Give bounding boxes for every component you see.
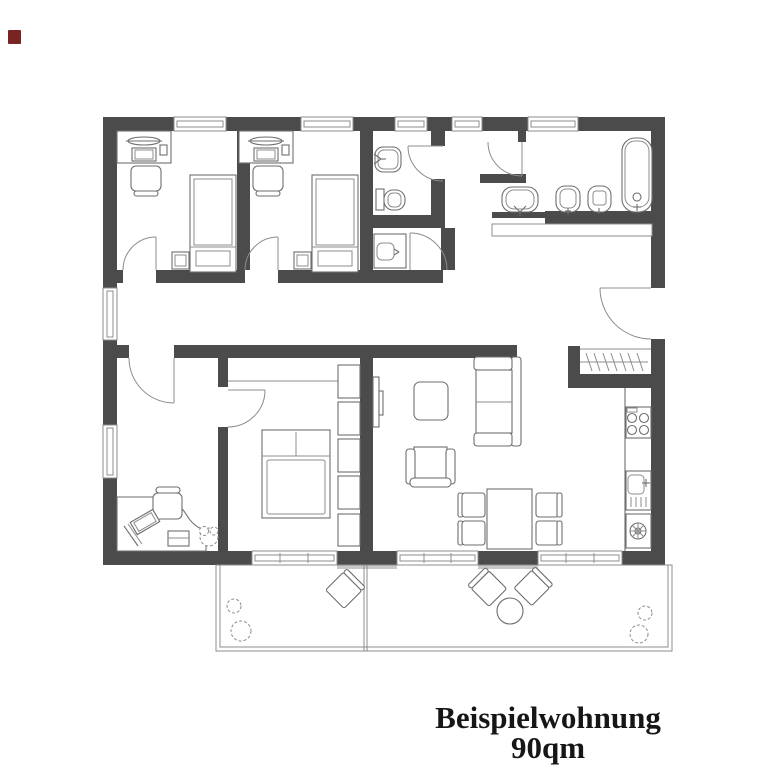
kitchen-stove — [626, 407, 651, 438]
window — [395, 117, 427, 131]
utility-sink — [374, 234, 406, 268]
dining-chair — [536, 521, 562, 545]
window — [174, 117, 226, 131]
nightstand — [172, 252, 189, 269]
armchair — [406, 447, 455, 487]
bidet — [556, 186, 580, 215]
office-chair — [153, 487, 182, 519]
terrace-window — [397, 551, 478, 565]
double-bed — [262, 430, 330, 518]
office-chair — [253, 166, 283, 196]
window — [452, 117, 482, 131]
door-swing — [123, 237, 156, 270]
window — [103, 425, 117, 478]
wardrobe — [338, 365, 360, 546]
bathtub — [622, 138, 652, 212]
dining-chair — [458, 521, 485, 545]
door-swing — [408, 146, 443, 181]
single-bed — [190, 175, 236, 272]
caption-line-2: 90qm — [511, 730, 585, 765]
wc — [374, 147, 406, 268]
tv — [373, 377, 383, 427]
floor-plan: Beispielwohnung 90qm — [0, 0, 768, 768]
phone — [160, 145, 167, 155]
door-swing — [600, 288, 651, 339]
master-bedroom — [228, 365, 360, 546]
office — [117, 487, 218, 551]
dining-table — [487, 489, 532, 549]
bedroom-2 — [239, 131, 358, 272]
floor-plan-page: Beispielwohnung 90qm — [0, 0, 768, 768]
window — [528, 117, 578, 131]
door-swing — [228, 390, 265, 427]
washbasin — [502, 187, 538, 216]
washbasin — [374, 147, 401, 172]
toilet — [376, 189, 405, 210]
nightstand — [294, 252, 311, 269]
keyboard — [168, 531, 189, 546]
exterior-walls — [103, 117, 665, 565]
single-bed — [312, 175, 358, 272]
terrace-chair — [514, 567, 553, 606]
terrace-chair — [326, 569, 366, 609]
coat-closet — [580, 349, 651, 371]
laptop — [254, 148, 278, 161]
door-swing — [488, 142, 522, 176]
washing-machine — [626, 514, 651, 548]
window — [301, 117, 353, 131]
living-room — [373, 357, 562, 549]
bedroom-1 — [117, 131, 236, 272]
plant — [630, 606, 652, 643]
office-chair — [131, 166, 161, 196]
plant — [200, 527, 219, 547]
phone — [282, 145, 289, 155]
hall-shelf — [492, 224, 652, 236]
terrace-table — [497, 598, 523, 624]
kitchen — [625, 388, 651, 551]
sofa — [474, 357, 521, 446]
coffee-table — [414, 382, 448, 420]
kitchen-sink — [626, 471, 651, 510]
dining-chair — [536, 493, 562, 517]
red-mark — [8, 30, 21, 44]
dining-chair — [458, 493, 485, 517]
terrace-window — [252, 551, 337, 565]
toilet — [588, 186, 611, 214]
door-swing — [129, 358, 174, 403]
terrace-window — [538, 551, 622, 565]
window — [103, 288, 117, 340]
terrace — [216, 565, 672, 651]
plant — [227, 599, 251, 641]
laptop — [132, 148, 156, 161]
terrace-chair — [468, 567, 507, 606]
